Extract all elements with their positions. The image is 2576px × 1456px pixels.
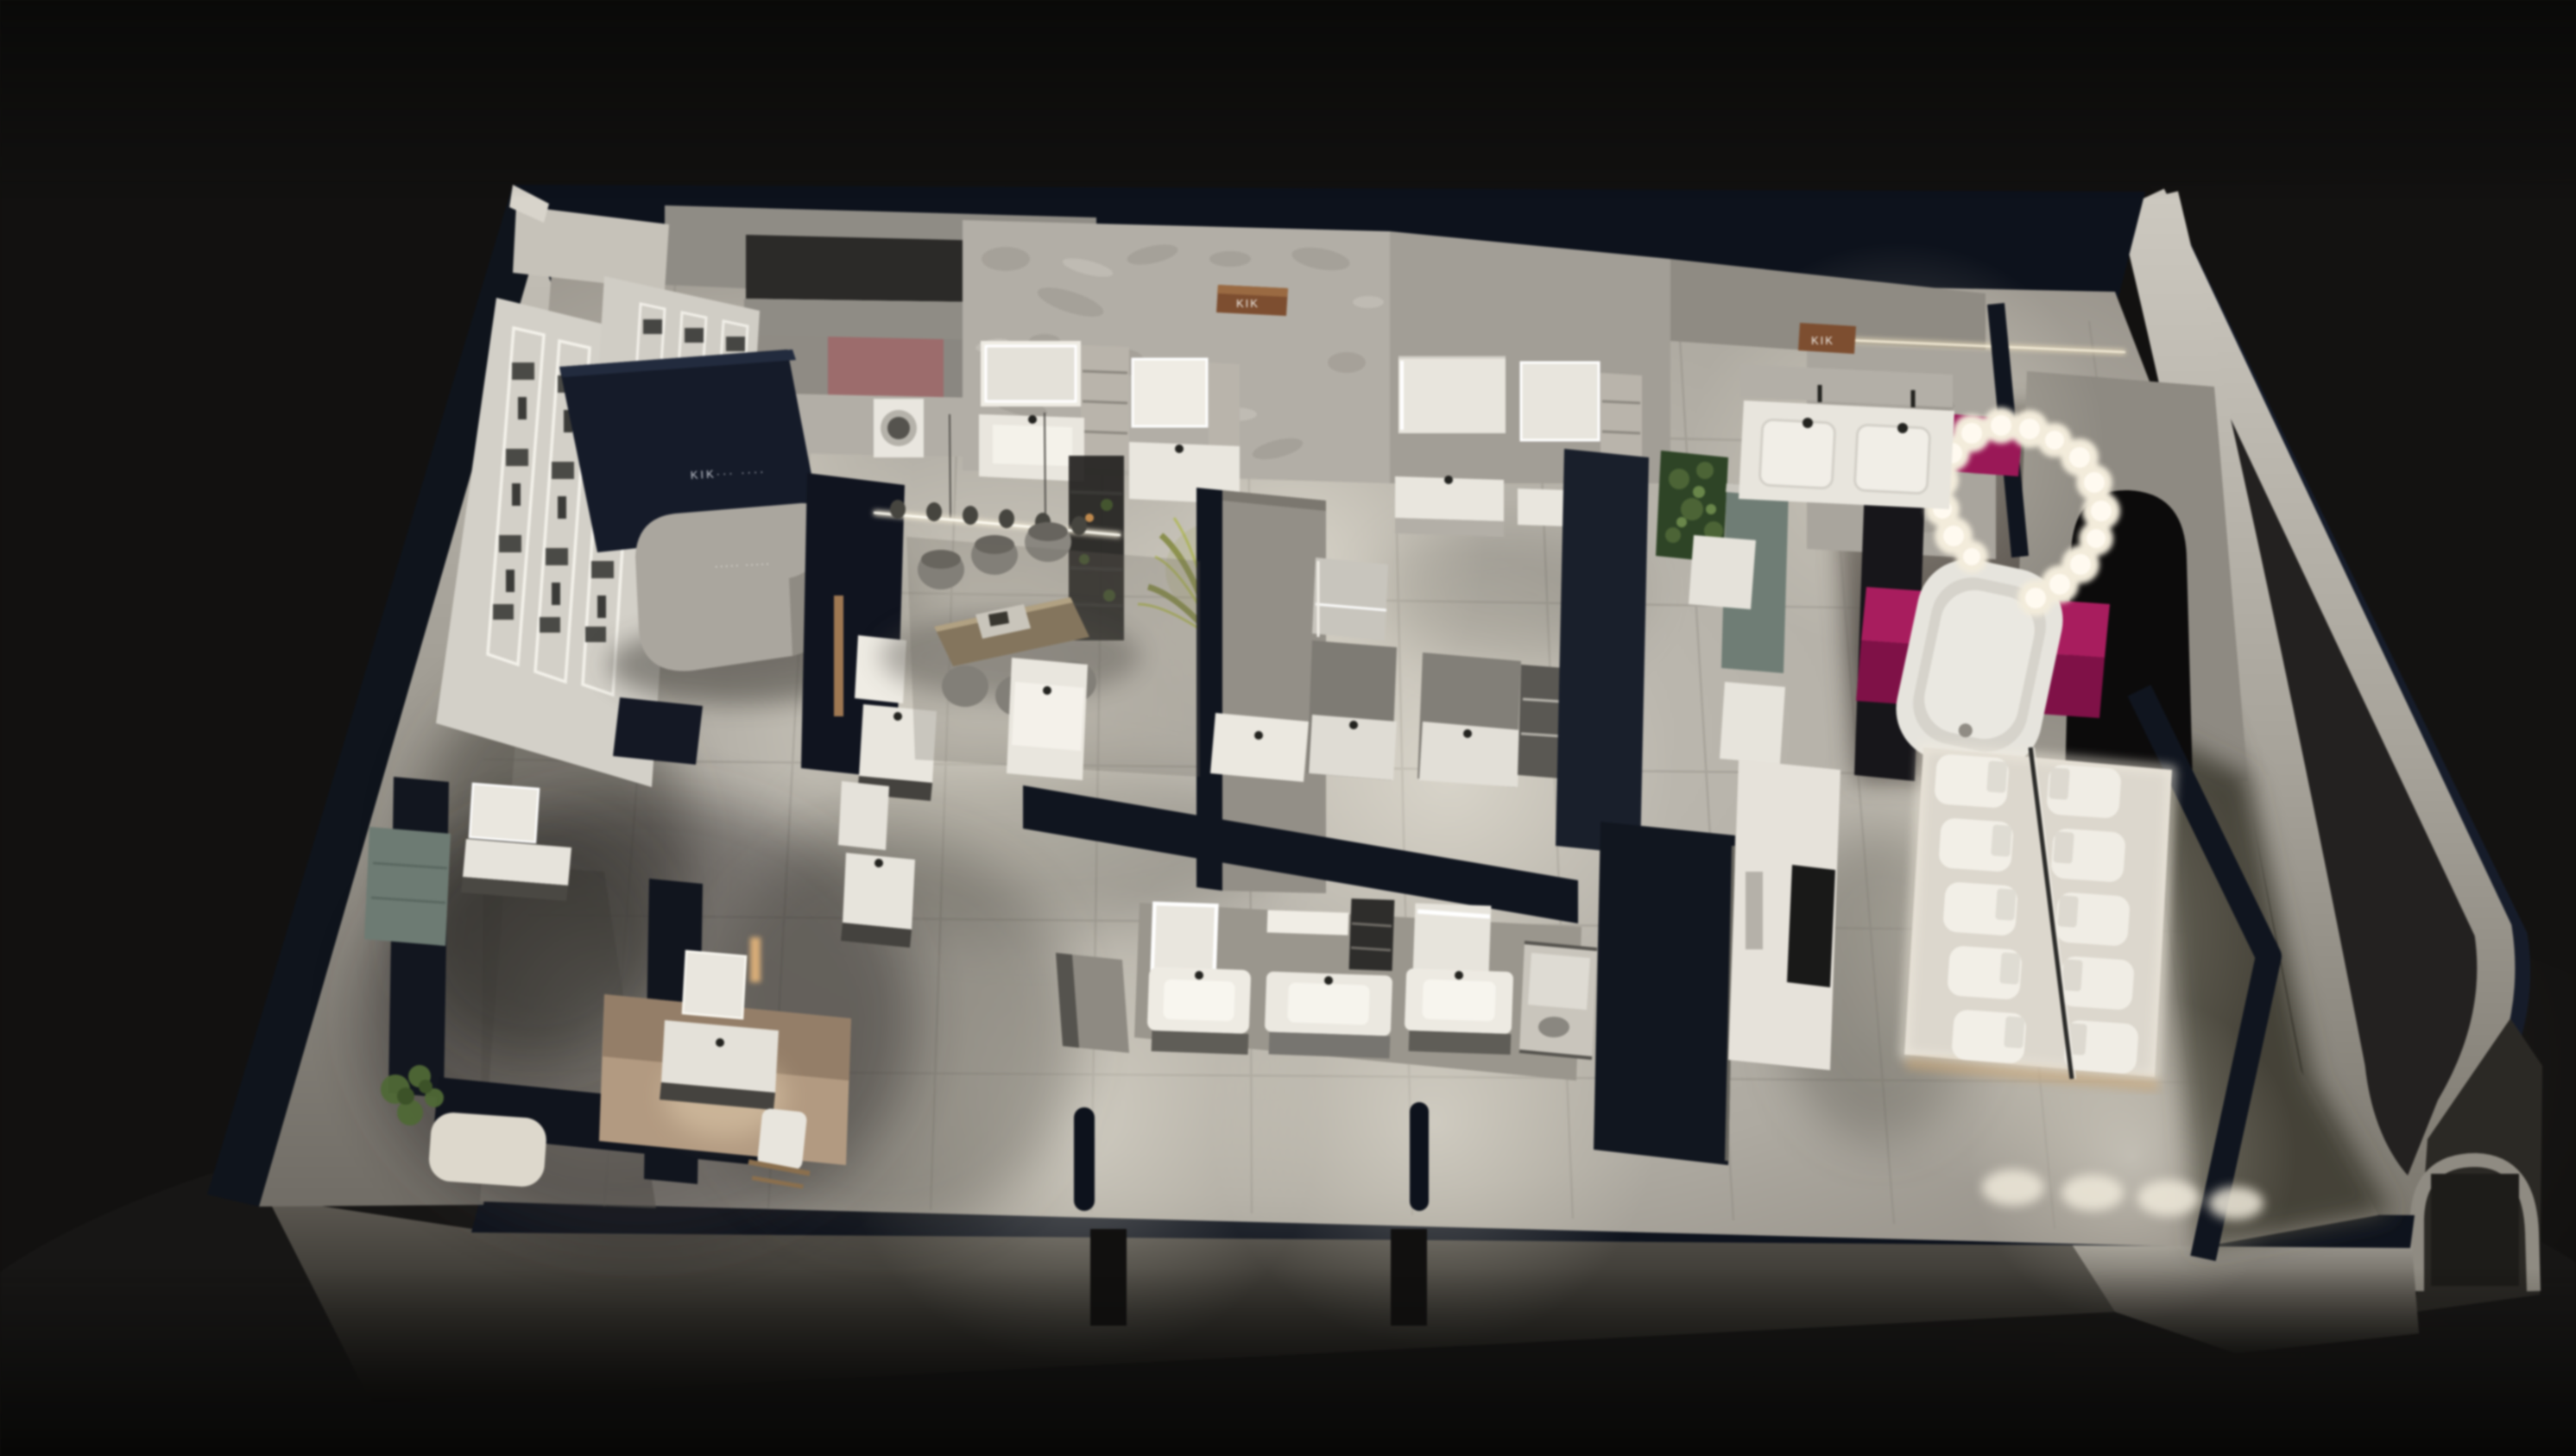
svg-text:KIK: KIK <box>1811 334 1834 347</box>
svg-text:KIK: KIK <box>1236 297 1260 310</box>
